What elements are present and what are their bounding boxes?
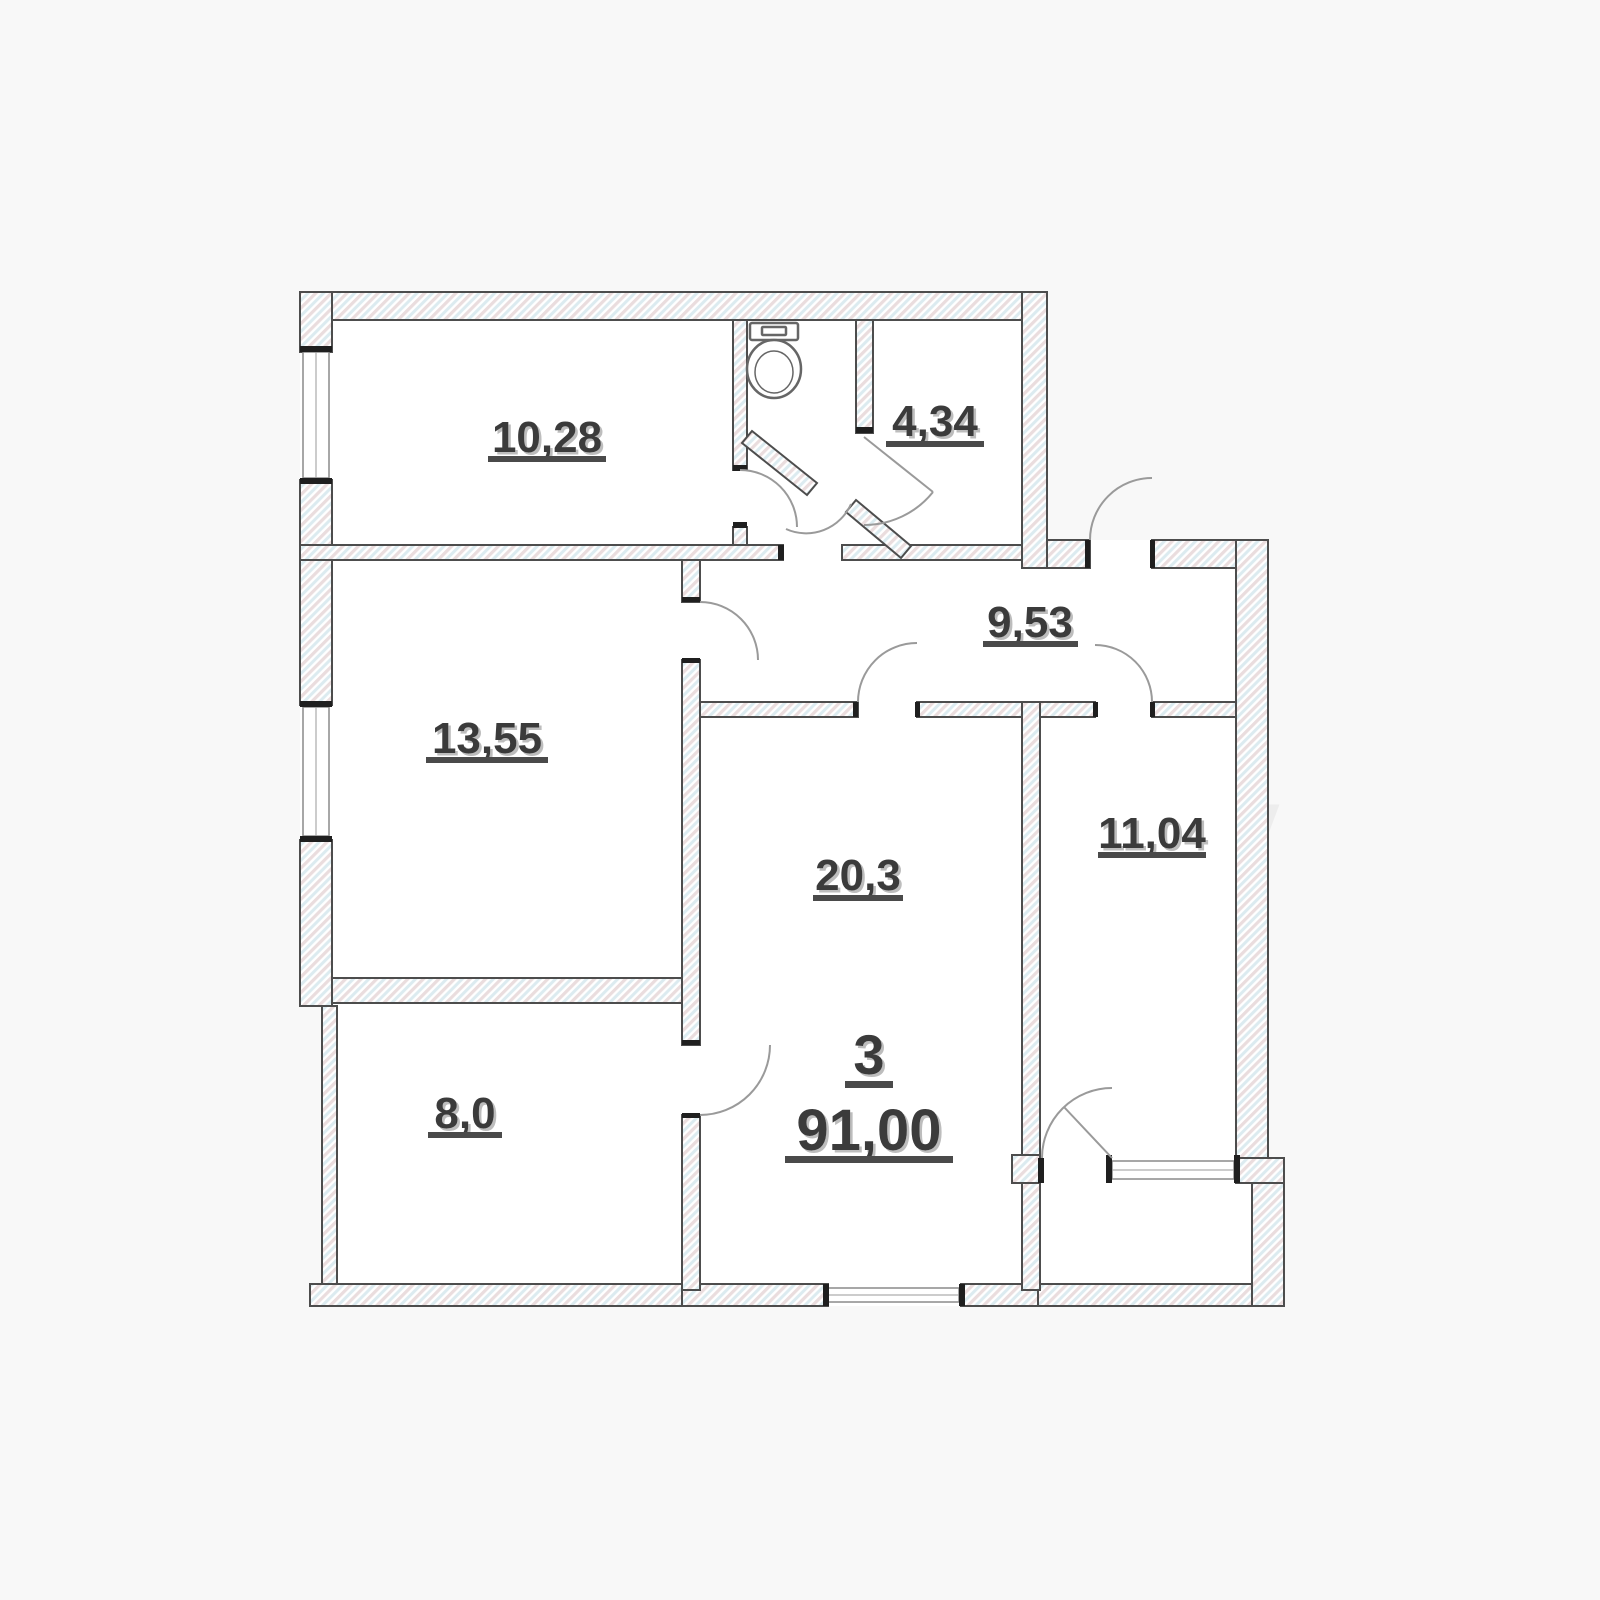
label-bedroom-left-area: 13,55 — [432, 714, 542, 763]
label-bedroom-top-area: 10,28 — [492, 413, 602, 462]
label-bathroom-area: 4,34 — [892, 397, 978, 446]
label-bedroom-top-underline — [488, 456, 606, 462]
window-bedroom-top-left-wall — [303, 352, 329, 478]
wall-bottom-kitchen — [310, 1284, 698, 1306]
wall-bedroom-left-kitchen — [332, 978, 682, 1003]
wall-loggia-right — [1252, 1183, 1284, 1306]
wall-exterior-left-b — [300, 480, 332, 705]
wall-exterior-right-top-block — [1022, 292, 1047, 568]
label-living-room-area: 20,3 — [815, 851, 901, 900]
toilet-bowl-inner — [755, 351, 793, 393]
window-bedroom-left-wall — [303, 707, 329, 836]
wall-exterior-top — [300, 292, 1047, 320]
wall-corridor-top-left-of-entry — [1047, 540, 1090, 568]
wall-right-step — [1236, 1158, 1284, 1183]
label-bedroom-left-underline — [426, 757, 548, 763]
label-bedroom-right-underline — [1098, 852, 1206, 858]
wall-bottom-loggia — [1038, 1284, 1284, 1306]
wall-center-vertical-b — [682, 660, 700, 1045]
wall-under-bathroom — [842, 545, 1022, 560]
floor-plan-drawing: moby — [0, 0, 1600, 1600]
label-hallway-underline — [983, 641, 1078, 647]
toilet-tank-lid — [762, 327, 786, 335]
toilet-icon — [747, 323, 801, 398]
wall-corridor-bottom-a — [700, 702, 858, 717]
window-living-room-bottom — [828, 1288, 959, 1302]
wall-stub-bedroom-top — [733, 527, 747, 545]
wall-bottom-living-left — [682, 1284, 828, 1306]
wall-exterior-left-a — [300, 292, 332, 352]
wall-stub-bedroom-right-bottom — [1012, 1155, 1040, 1183]
wall-living-bedroom-right — [1022, 702, 1040, 1290]
apartment-total-area: 91,00 — [796, 1098, 941, 1163]
wall-center-vertical-c — [682, 1115, 700, 1290]
wall-exterior-left-c — [300, 840, 332, 1006]
label-living-room-underline — [813, 895, 903, 901]
wall-center-vertical-a — [682, 560, 700, 602]
label-kitchen-underline — [428, 1132, 502, 1138]
wall-corridor-bottom-b — [917, 702, 1095, 717]
label-bedroom-right-area: 11,04 — [1098, 809, 1206, 858]
label-kitchen-area: 8,0 — [434, 1089, 495, 1138]
wall-wc-bathroom — [856, 320, 873, 433]
wall-bedroom-top-wc — [733, 320, 747, 470]
apartment-total-area-underline — [785, 1156, 953, 1163]
window-loggia — [1112, 1161, 1234, 1179]
label-hallway-area: 9,53 — [987, 598, 1073, 647]
wall-kitchen-left — [322, 1006, 337, 1306]
apartment-number: 3 — [853, 1023, 884, 1086]
wall-under-top-rooms — [300, 545, 783, 560]
floor-plan-page: moby — [0, 0, 1600, 1600]
wall-exterior-right — [1236, 540, 1268, 1158]
wall-corridor-bottom-c — [1152, 702, 1236, 717]
apartment-number-underline — [845, 1081, 893, 1088]
label-bathroom-underline — [886, 441, 984, 447]
